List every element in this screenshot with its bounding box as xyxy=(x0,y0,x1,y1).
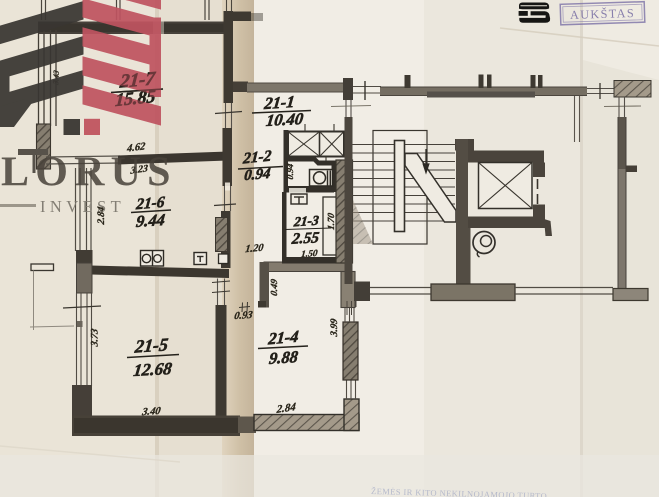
svg-text:1.70: 1.70 xyxy=(326,212,337,231)
svg-text:1.20: 1.20 xyxy=(244,243,264,256)
svg-text:3.99: 3.99 xyxy=(329,318,340,338)
svg-text:21-3: 21-3 xyxy=(292,213,319,230)
svg-text:INVEST: INVEST xyxy=(40,197,125,216)
svg-text:LORUS: LORUS xyxy=(1,150,177,196)
svg-text:10.40: 10.40 xyxy=(265,109,305,130)
svg-text:0.94: 0.94 xyxy=(244,166,272,184)
svg-text:9.88: 9.88 xyxy=(268,347,299,368)
svg-text:0.93: 0.93 xyxy=(233,310,254,322)
svg-text:3.40: 3.40 xyxy=(140,406,162,418)
svg-text:2.55: 2.55 xyxy=(290,229,320,247)
svg-text:21-2: 21-2 xyxy=(242,147,273,167)
svg-text:0.94: 0.94 xyxy=(285,162,295,180)
svg-text:9.44: 9.44 xyxy=(135,210,166,231)
svg-text:12.68: 12.68 xyxy=(132,359,173,380)
svg-text:1.50: 1.50 xyxy=(300,248,318,260)
svg-text:21-5: 21-5 xyxy=(133,334,169,356)
svg-text:AUKŠTAS: AUKŠTAS xyxy=(570,6,635,22)
svg-text:0.49: 0.49 xyxy=(269,278,280,297)
svg-text:21-4: 21-4 xyxy=(267,327,300,349)
svg-text:3.73: 3.73 xyxy=(90,328,101,348)
